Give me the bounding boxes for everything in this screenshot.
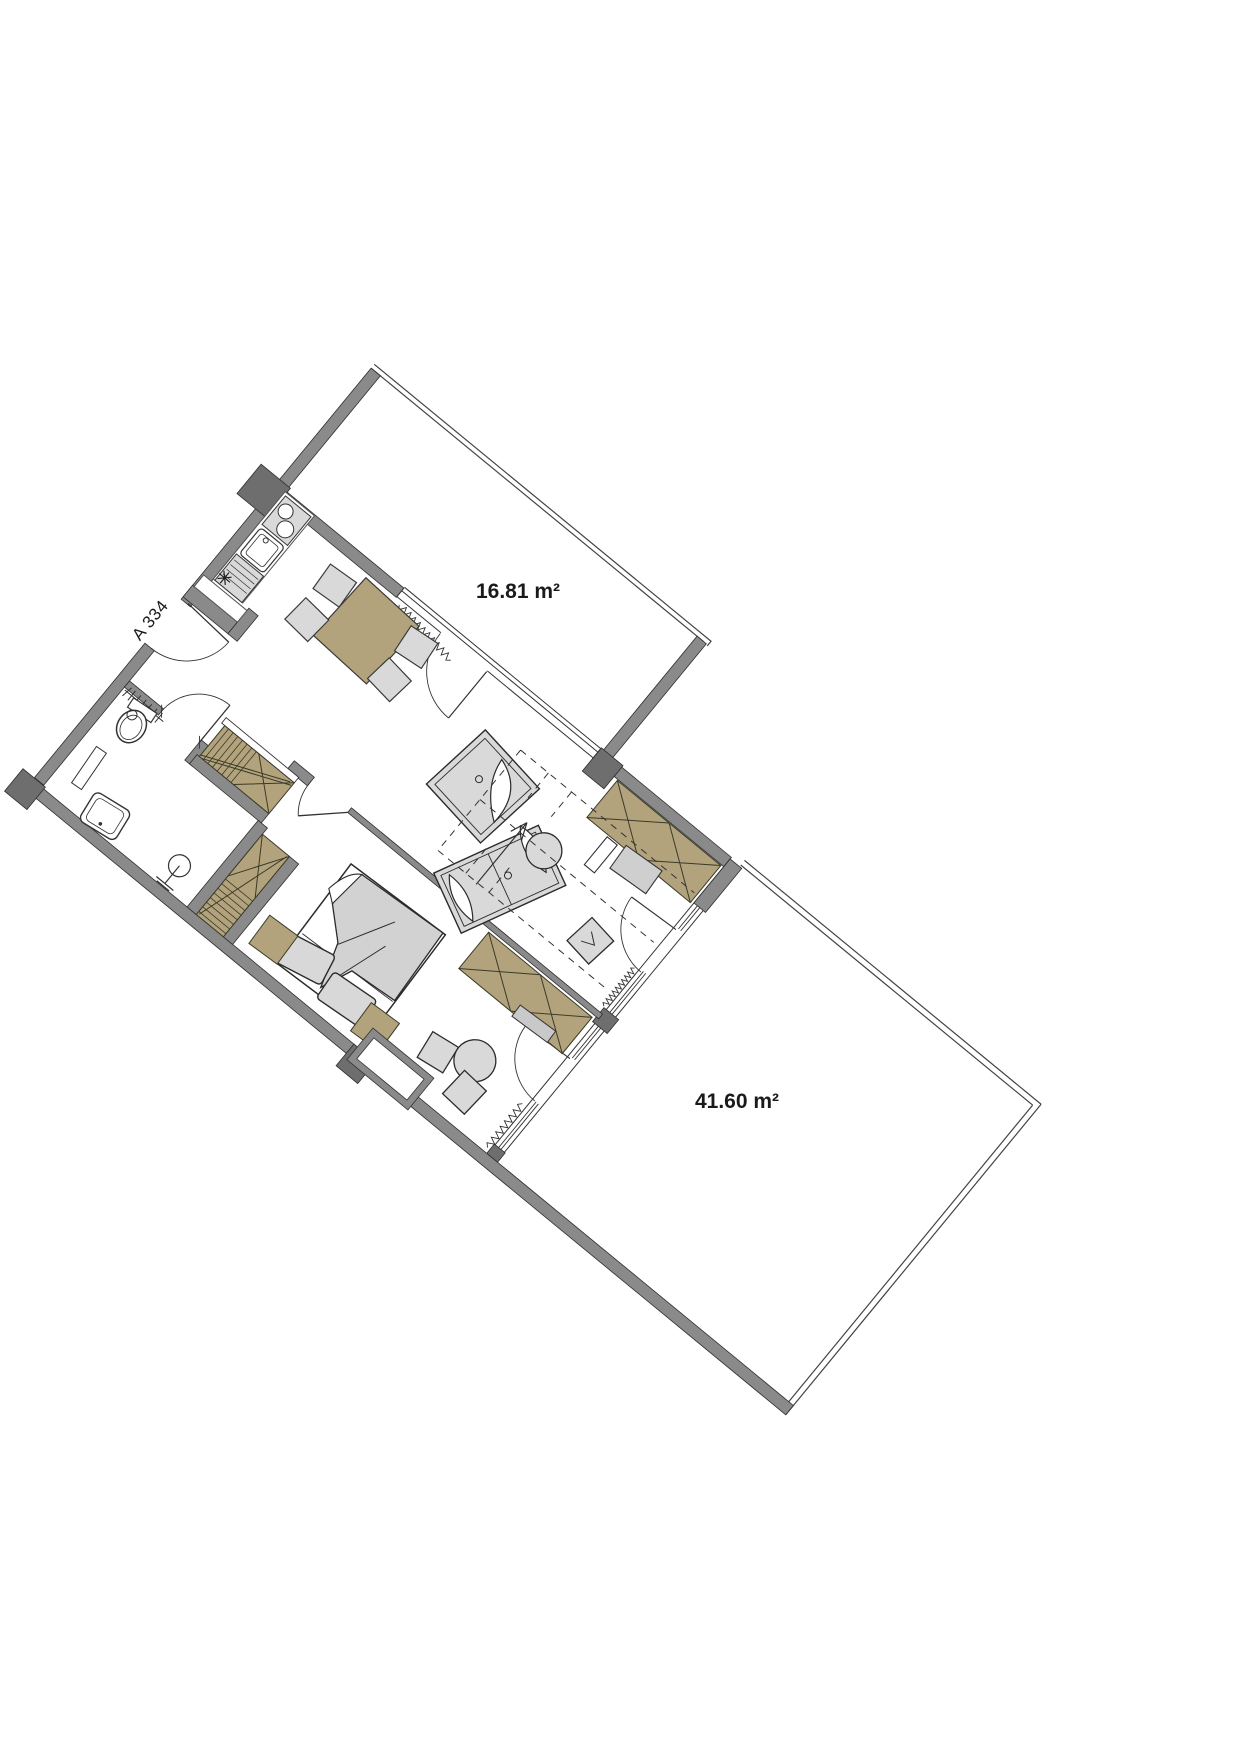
svg-text:16.81 m²: 16.81 m² — [476, 580, 560, 603]
svg-text:41.60 m²: 41.60 m² — [695, 1090, 779, 1113]
